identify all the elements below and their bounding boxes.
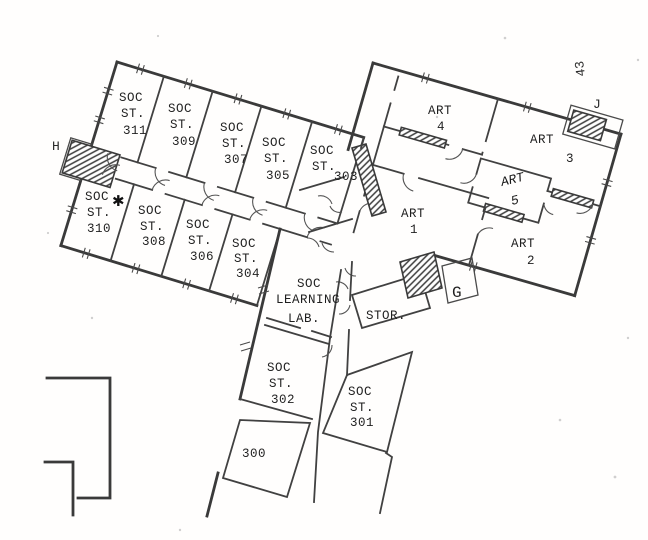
art-junction-wall xyxy=(384,76,398,126)
label-soc309-l1: SOC xyxy=(168,102,192,116)
floor-plan-svg: SOC ST. 311 SOC ST. 309 SOC ST. 307 SOC … xyxy=(0,0,648,540)
label-soc306-l3: 306 xyxy=(190,250,214,264)
label-soc305-l1: SOC xyxy=(262,136,286,150)
label-lab-l2: LEARNING xyxy=(276,293,340,307)
soc-bottom-wall xyxy=(61,246,257,306)
label-art1-l2: 1 xyxy=(410,223,418,237)
label-art1-l1: ART xyxy=(401,207,425,221)
label-art4-l1: ART xyxy=(428,104,452,118)
art-east-wall xyxy=(575,134,621,295)
label-soc310-l2: ST. xyxy=(87,206,111,220)
label-soc308-l1: SOC xyxy=(138,204,162,218)
lower-east-wall-jog xyxy=(380,453,392,513)
marker-j: J xyxy=(593,97,601,112)
label-soc304-l2: ST. xyxy=(234,252,258,266)
g-stair-hatch xyxy=(400,252,442,298)
label-soc304-l3: 304 xyxy=(236,267,260,281)
lower-west-wall-continuation xyxy=(207,473,218,516)
label-soc305-l2: ST. xyxy=(264,152,288,166)
marker-43: 43 xyxy=(572,60,589,77)
label-soc304-l1: SOC xyxy=(232,237,256,251)
h-stair-hatch xyxy=(62,140,120,187)
label-soc309-l2: ST. xyxy=(170,118,194,132)
label-soc308-l2: ST. xyxy=(140,220,164,234)
label-soc301-l2: ST. xyxy=(350,401,374,415)
lower-corridor-east-wall xyxy=(347,262,352,375)
label-soc305-l3: 305 xyxy=(266,169,290,183)
art3-south-hatch xyxy=(551,189,594,208)
label-soc303-l2: ST. xyxy=(312,160,336,174)
label-soc307-l1: SOC xyxy=(220,121,244,135)
label-soc302-l2: ST. xyxy=(269,377,293,391)
label-art2-l2: 2 xyxy=(527,254,535,268)
label-soc308-l3: 308 xyxy=(142,235,166,249)
marker-h: H xyxy=(52,139,60,154)
label-soc310-l3: 310 xyxy=(87,222,111,236)
label-soc306-l1: SOC xyxy=(186,218,210,232)
label-soc302-l1: SOC xyxy=(267,361,291,375)
label-stor: STOR. xyxy=(366,309,406,323)
label-lab-l3: LAB. xyxy=(288,312,320,326)
label-room300: 300 xyxy=(242,447,266,461)
label-soc311-l1: SOC xyxy=(119,91,143,105)
label-soc309-l3: 309 xyxy=(172,135,196,149)
label-art5-l1: ART xyxy=(498,169,526,190)
label-art5-l2: 5 xyxy=(509,192,520,208)
label-art4-l2: 4 xyxy=(437,120,445,134)
hook-outline-small xyxy=(45,462,73,515)
soc310-asterisk: ✱ xyxy=(112,192,125,210)
label-art2-l1: ART xyxy=(511,237,535,251)
label-soc310-l1: SOC xyxy=(85,190,109,204)
hook-outline-main xyxy=(47,378,110,498)
label-soc303-l3: 303 xyxy=(334,170,358,184)
marker-g: G xyxy=(452,284,462,302)
room300-outline xyxy=(223,420,310,497)
label-soc311-l2: ST. xyxy=(121,107,145,121)
label-soc306-l2: ST. xyxy=(188,234,212,248)
soc-door-arcs-south xyxy=(102,161,324,241)
art1-art2-divider xyxy=(469,208,486,266)
label-soc307-l2: ST. xyxy=(222,137,246,151)
label-soc301-l3: 301 xyxy=(350,416,374,430)
j-stair-hatch xyxy=(568,110,607,141)
art4-art3-divider xyxy=(482,99,498,155)
label-soc303-l1: SOC xyxy=(310,144,334,158)
floor-plan-page: SOC ST. 311 SOC ST. 309 SOC ST. 307 SOC … xyxy=(0,0,648,540)
label-soc307-l3: 307 xyxy=(224,153,248,167)
label-soc311-l3: 311 xyxy=(123,124,147,138)
label-art3-l2: 3 xyxy=(566,152,574,166)
label-soc301-l1: SOC xyxy=(348,385,372,399)
label-art3-l1: ART xyxy=(530,133,554,147)
label-soc302-l3: 302 xyxy=(271,393,295,407)
label-lab-l1: SOC xyxy=(297,277,321,291)
